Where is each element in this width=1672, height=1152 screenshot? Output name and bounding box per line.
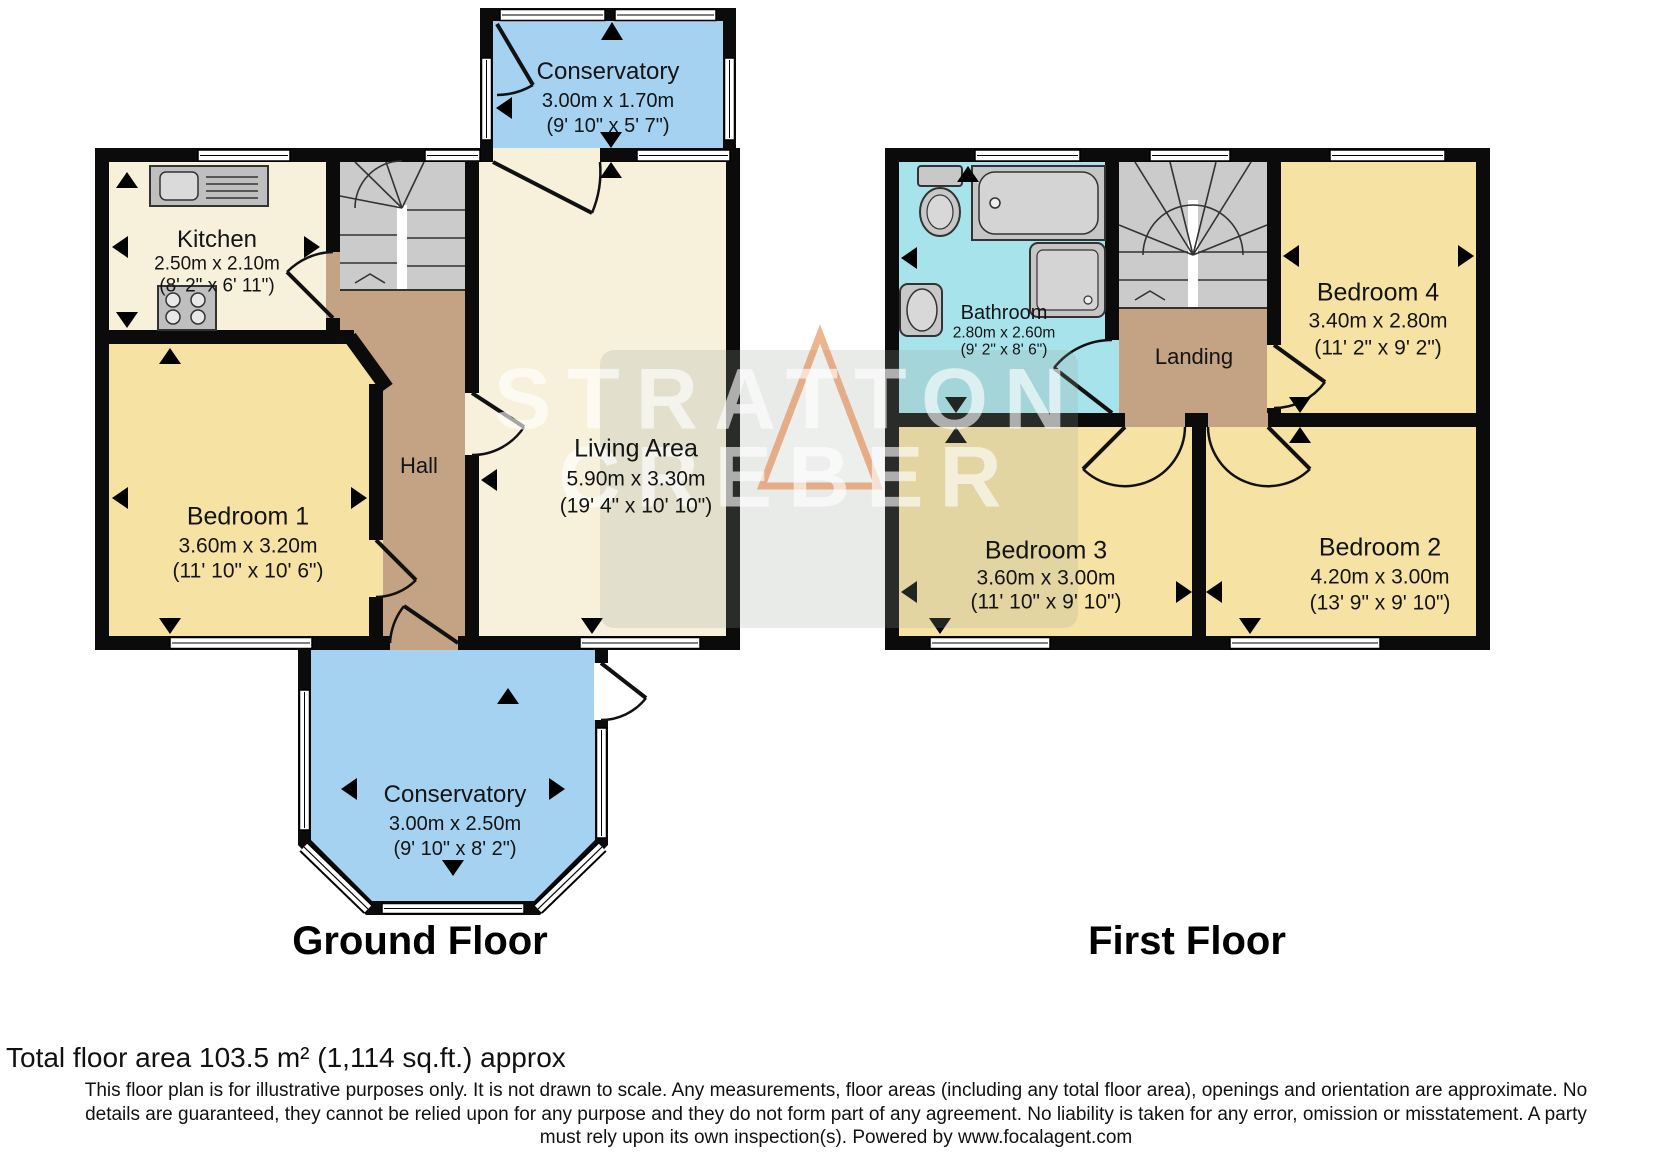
conservatory-top-dims-metric: 3.00m x 1.70m: [542, 91, 674, 111]
basin-icon: [900, 284, 942, 336]
floorplan-page: STRATTON CREBER Conservatory 3.00m x 1.7…: [0, 0, 1672, 1152]
conservatory-bottom-dims-imperial: (9' 10" x 8' 2"): [394, 839, 517, 859]
conservatory-top-dims-imperial: (9' 10" x 5' 7"): [547, 116, 670, 136]
total-floor-area-text: Total floor area 103.5 m² (1,114 sq.ft.)…: [6, 1042, 566, 1074]
living-area-name: Living Area: [574, 437, 698, 462]
bedroom2-name: Bedroom 2: [1319, 536, 1441, 561]
kitchen-dims-imperial: (8' 2" x 6' 11"): [159, 277, 274, 296]
bedroom1-name: Bedroom 1: [187, 505, 309, 530]
kitchen-dims-metric: 2.50m x 2.10m: [154, 255, 280, 274]
bedroom1-dims-metric: 3.60m x 3.20m: [179, 536, 318, 557]
bedroom3-name: Bedroom 3: [985, 539, 1107, 564]
conservatory-bottom-dims-metric: 3.00m x 2.50m: [389, 814, 521, 834]
kitchen-name: Kitchen: [177, 228, 257, 252]
bathroom-dims-imperial: (9' 2" x 8' 6"): [961, 342, 1048, 358]
bedroom1-dims-imperial: (11' 10" x 10' 6"): [173, 561, 324, 582]
bedroom4-name: Bedroom 4: [1317, 281, 1439, 306]
sink-unit-icon: [150, 166, 268, 206]
bedroom4-dims-metric: 3.40m x 2.80m: [1309, 311, 1448, 332]
disclaimer-line-2: details are guaranteed, they cannot be r…: [0, 1103, 1672, 1127]
bedroom1-floor: [109, 344, 383, 636]
landing-name: Landing: [1155, 346, 1233, 368]
disclaimer-text: This floor plan is for illustrative purp…: [0, 1079, 1672, 1150]
living-area-dims-metric: 5.90m x 3.30m: [567, 469, 706, 490]
toilet-icon: [918, 166, 962, 236]
conservatory-top-name: Conservatory: [537, 60, 680, 84]
bathroom-name: Bathroom: [961, 303, 1048, 323]
hall-name: Hall: [400, 455, 438, 477]
living-area-dims-imperial: (19' 4" x 10' 10"): [560, 496, 713, 517]
conservatory-bottom-name: Conservatory: [384, 783, 527, 807]
bedroom2-dims-imperial: (13' 9" x 9' 10"): [1310, 593, 1451, 614]
bathtub-icon: [972, 166, 1105, 240]
bathroom-dims-metric: 2.80m x 2.60m: [953, 325, 1056, 341]
disclaimer-line-3: must rely upon its own inspection(s). Po…: [0, 1126, 1672, 1150]
bedroom4-dims-imperial: (11' 2" x 9' 2"): [1314, 338, 1442, 359]
bedroom3-dims-metric: 3.60m x 3.00m: [977, 568, 1116, 589]
bedroom2-dims-metric: 4.20m x 3.00m: [1311, 567, 1450, 588]
disclaimer-line-1: This floor plan is for illustrative purp…: [0, 1079, 1672, 1103]
ground-floor-title: Ground Floor: [292, 921, 548, 961]
first-floor-title: First Floor: [1088, 921, 1286, 961]
bedroom3-dims-imperial: (11' 10" x 9' 10"): [971, 592, 1122, 613]
